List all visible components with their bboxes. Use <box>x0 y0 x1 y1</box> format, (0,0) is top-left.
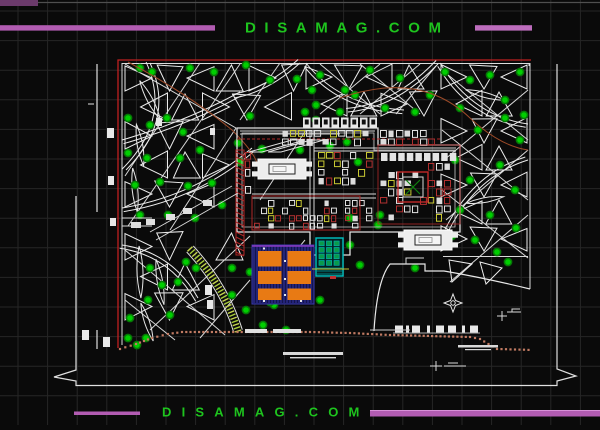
svg-text:DISAMAG.COM: DISAMAG.COM <box>162 405 370 420</box>
svg-text:DISAMAG.COM: DISAMAG.COM <box>245 20 450 37</box>
